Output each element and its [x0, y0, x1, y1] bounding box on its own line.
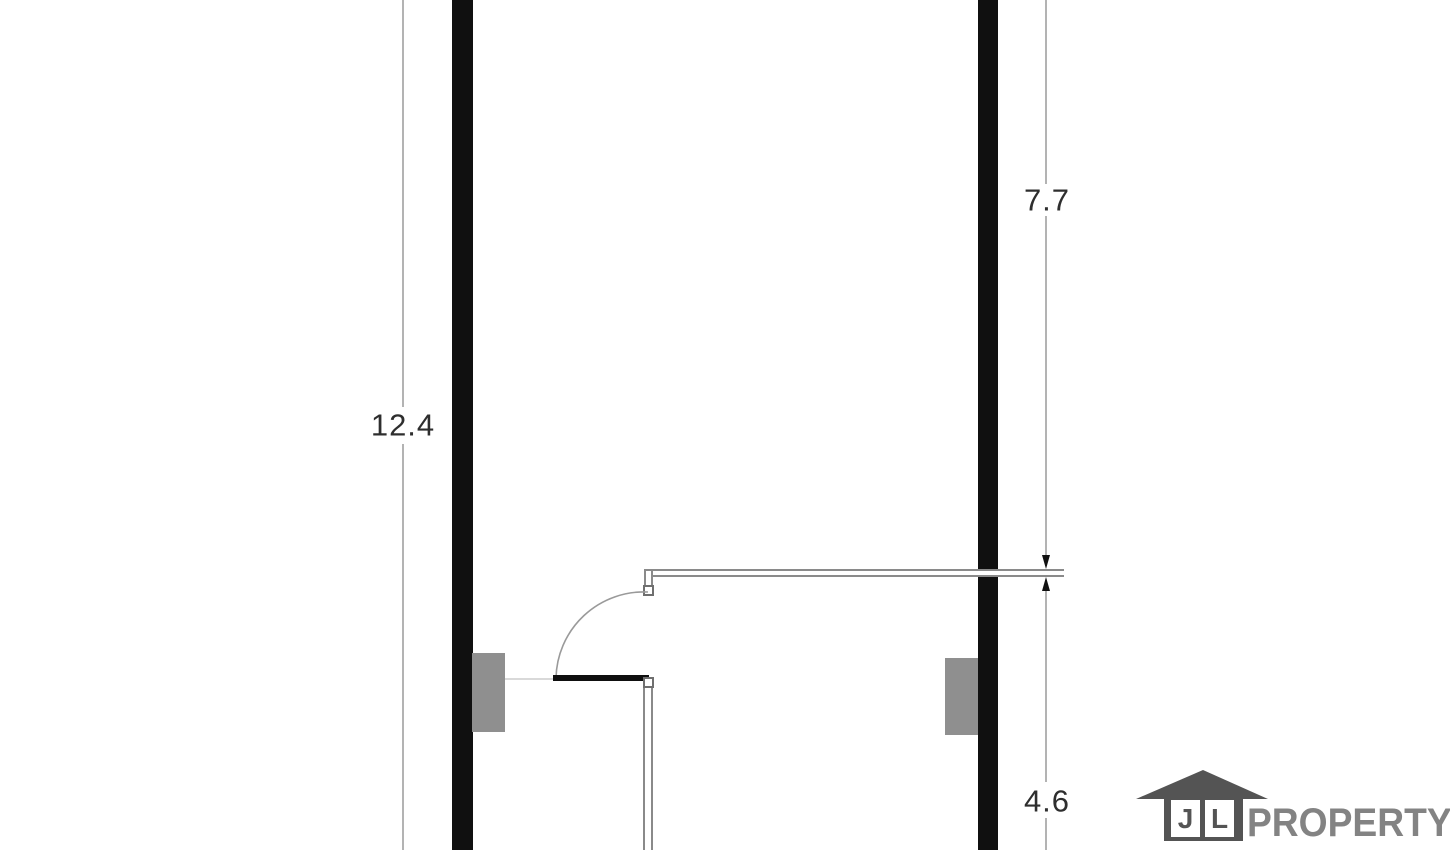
logo-brand-text: PROPERTY [1247, 803, 1450, 843]
left-wall-pilaster [472, 653, 505, 732]
logo-letter-j: J [1178, 803, 1194, 835]
floor-plan-canvas: 12.4 7.7 4.6 J L PROPERTY [0, 0, 1450, 850]
door-jamb-bottom [643, 677, 654, 688]
door-leaf [553, 675, 649, 681]
dimension-line-left-lower [402, 444, 404, 850]
dimension-arrow-up-icon [1042, 577, 1050, 591]
dimension-line-left-upper [402, 0, 404, 407]
logo-letter-l: L [1211, 803, 1228, 835]
dimension-label-right-lower: 4.6 [1024, 786, 1070, 817]
dimension-line-right-seg2 [1045, 216, 1047, 566]
logo: J L PROPERTY [1135, 768, 1450, 850]
partition-wall-vertical-lower [643, 688, 653, 850]
dimension-line-right-seg3 [1045, 580, 1047, 782]
dimension-label-right-upper: 7.7 [1024, 185, 1070, 216]
dimension-arrow-down-icon [1042, 555, 1050, 569]
right-wall [978, 0, 998, 850]
partition-wall-horizontal [644, 569, 1064, 577]
dimension-line-right-seg1 [1045, 0, 1047, 184]
logo-letter-l-pane: L [1205, 800, 1234, 837]
right-wall-pilaster [945, 658, 978, 735]
dimension-line-right-seg4 [1045, 818, 1047, 850]
dimension-label-left-total: 12.4 [371, 410, 435, 441]
logo-letter-j-pane: J [1171, 800, 1200, 837]
left-wall [452, 0, 473, 850]
